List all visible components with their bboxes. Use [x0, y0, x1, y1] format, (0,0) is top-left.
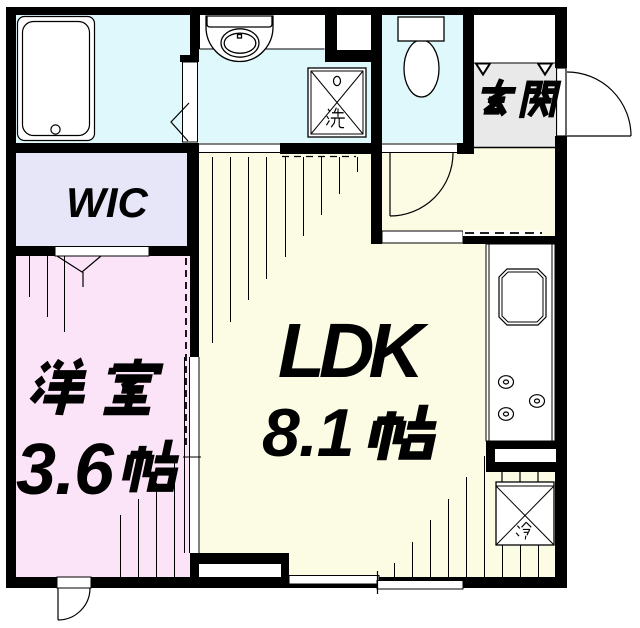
- svg-text:WIC: WIC: [66, 179, 148, 226]
- svg-text:8.1: 8.1: [262, 395, 354, 471]
- svg-text:3.6: 3.6: [16, 430, 115, 510]
- svg-text:LDK: LDK: [278, 308, 430, 394]
